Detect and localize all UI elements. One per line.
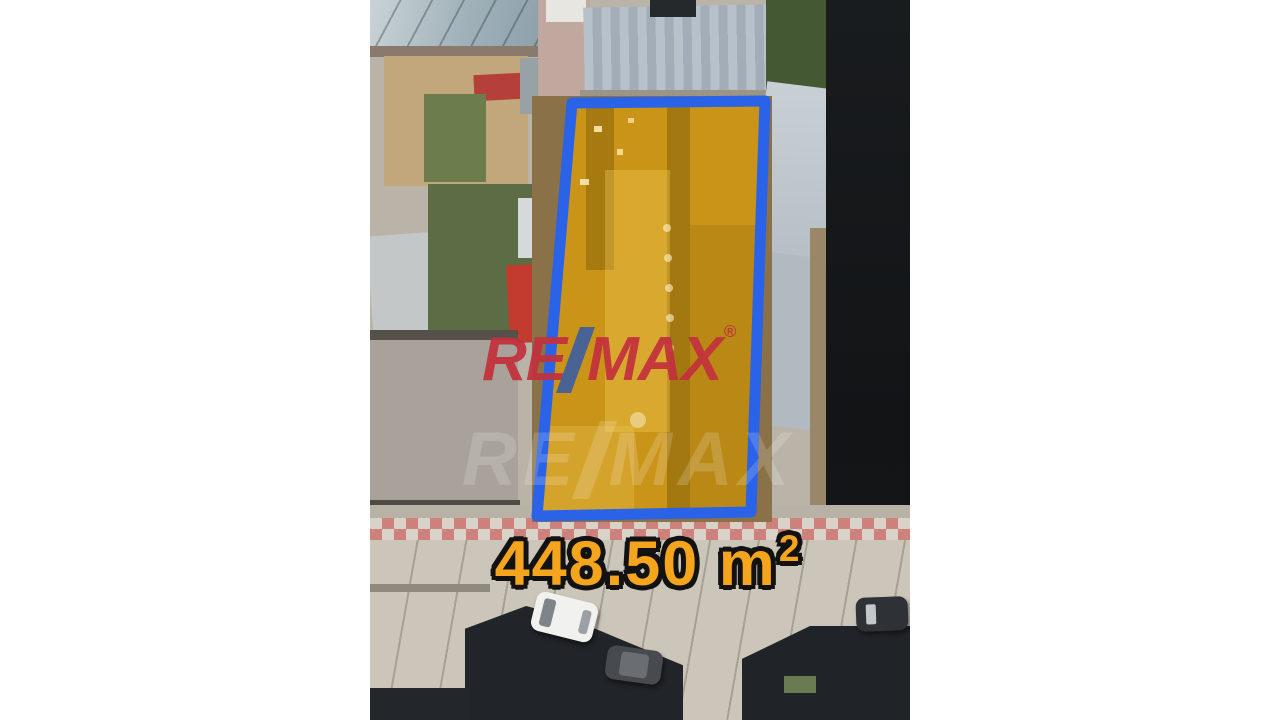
remax-faint-right: MAX [609, 416, 796, 503]
registered-trademark-symbol: ® [724, 322, 736, 342]
area-exponent: 2 [779, 528, 802, 569]
lot-ring-1 [663, 224, 671, 232]
lot-speck-2 [617, 149, 623, 155]
remax-faint-left: RE [462, 416, 580, 503]
lot-ring-3 [665, 284, 673, 292]
remax-watermark: REMAX® [482, 324, 735, 395]
lot-speck-3 [580, 179, 589, 185]
area-label: 448.50 m2 [481, 528, 800, 600]
lot-ring-4 [666, 314, 674, 322]
remax-right: MAX [587, 324, 722, 395]
remax-left: RE [482, 324, 566, 395]
aerial-photo: REMAX REMAX® 448.50 m2 [370, 0, 910, 720]
lot-ring-2 [664, 254, 672, 262]
area-value: 448.50 m [495, 529, 777, 599]
lot-speck-4 [628, 118, 634, 123]
remax-watermark-faint: REMAX [462, 416, 795, 503]
lot-speck-1 [594, 126, 602, 132]
